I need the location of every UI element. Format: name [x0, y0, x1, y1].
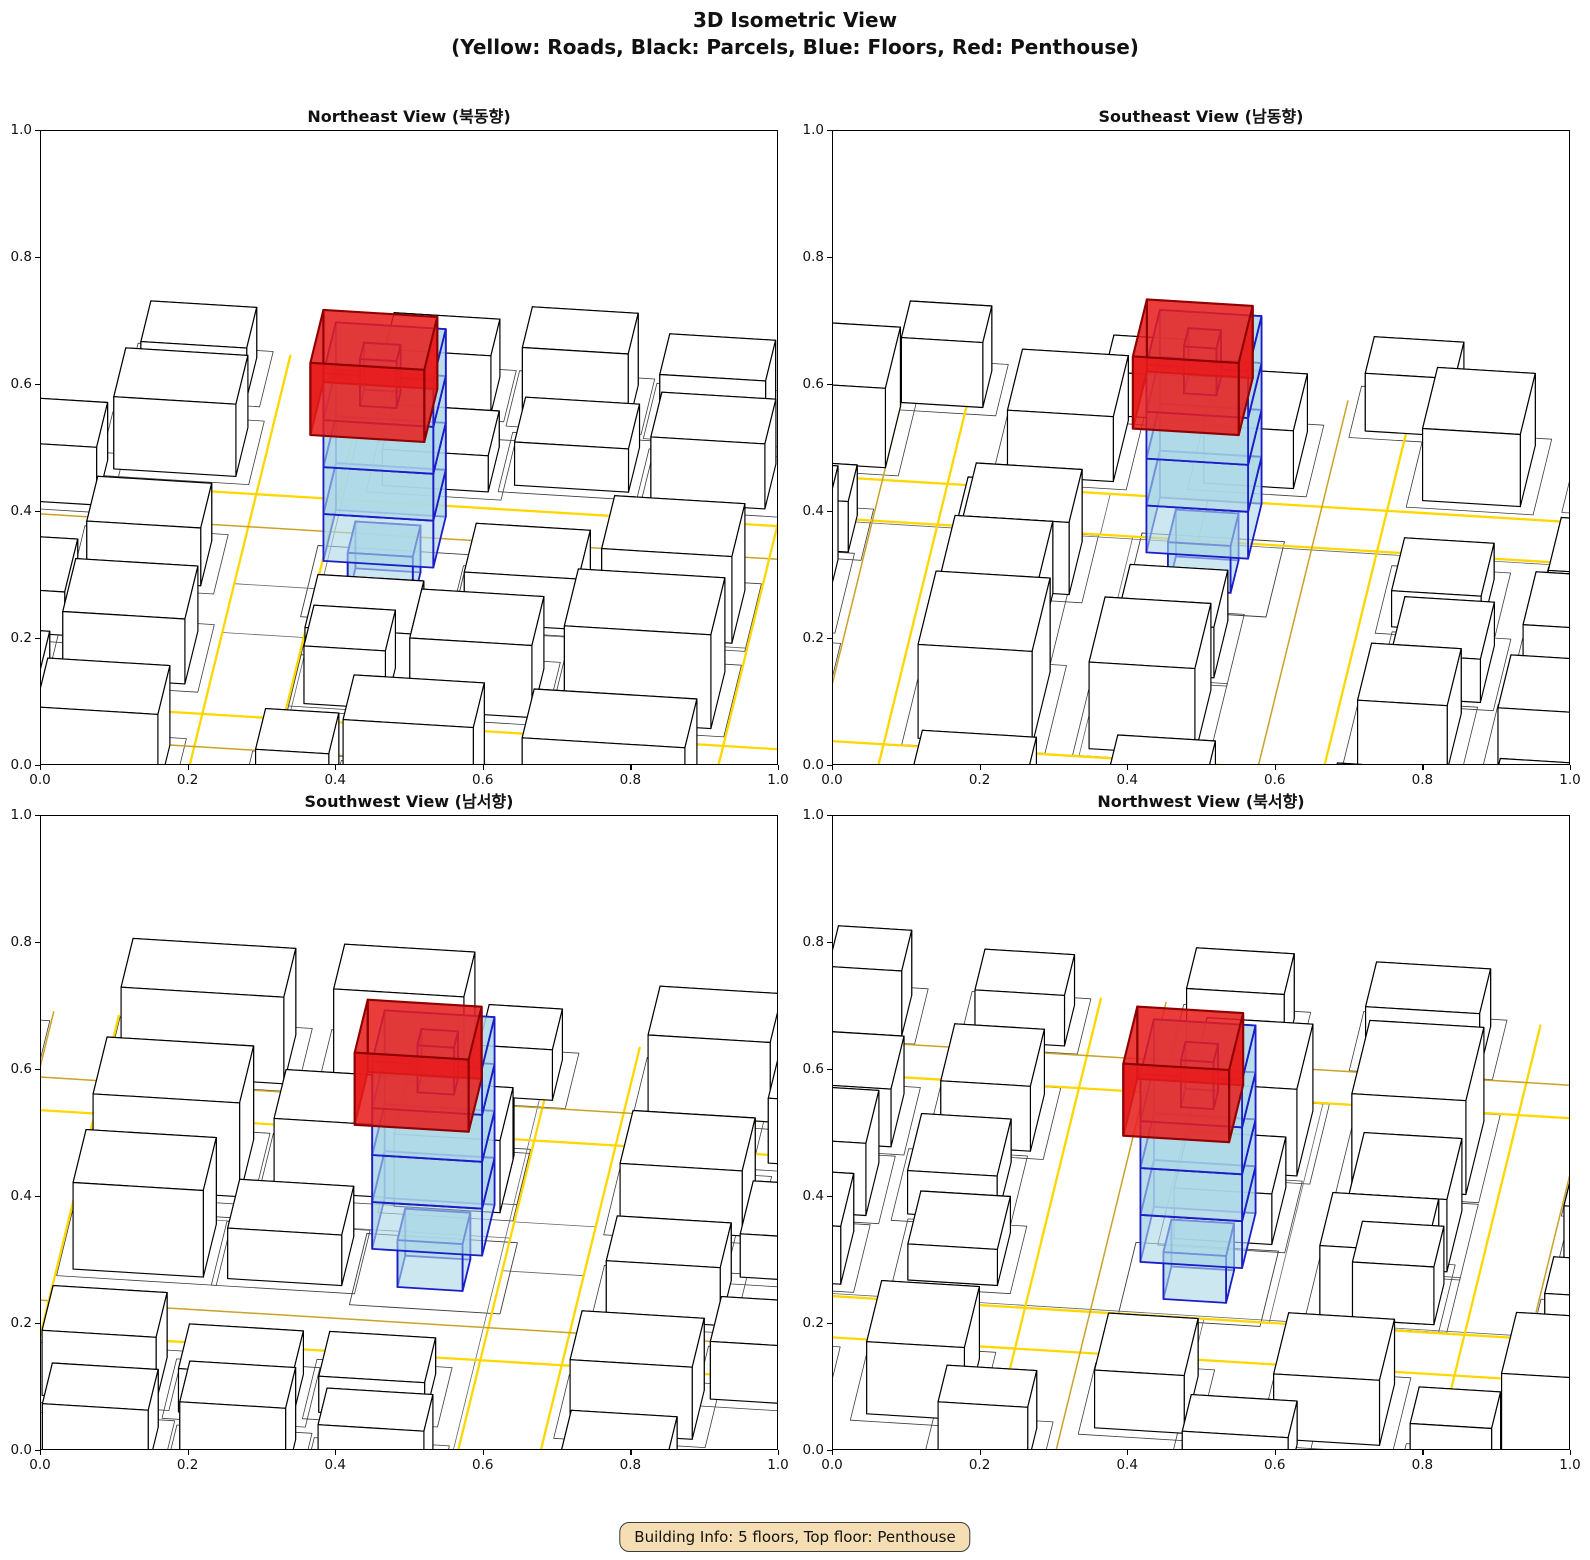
y-tick-label: 0.0 — [0, 757, 32, 773]
building-top-face — [180, 1361, 296, 1408]
figure: 3D Isometric View (Yellow: Roads, Black:… — [0, 0, 1590, 1560]
building-top-face — [334, 944, 475, 997]
building-side-face — [901, 338, 982, 408]
x-tick-mark — [1127, 765, 1128, 770]
building-top-face — [40, 658, 170, 714]
building-top-face — [561, 1410, 677, 1450]
building-side-face — [740, 1234, 778, 1282]
y-tick-mark — [35, 511, 40, 512]
y-tick-mark — [827, 511, 832, 512]
panel-title-southwest: Southwest View (남서향) — [40, 788, 778, 812]
building-top-face — [63, 559, 198, 619]
x-tick-label: 0.4 — [313, 772, 357, 788]
y-tick-label: 0.2 — [0, 630, 32, 646]
subject-floor-3-side-face — [323, 467, 433, 521]
building-side-face — [1498, 708, 1570, 765]
building-top-face — [73, 1130, 216, 1191]
scene-northwest — [832, 926, 1570, 1450]
x-tick-label: 1.0 — [756, 1457, 800, 1473]
scene-southwest — [40, 938, 778, 1450]
y-tick-mark — [827, 942, 832, 943]
y-tick-mark — [35, 384, 40, 385]
x-tick-mark — [188, 765, 189, 770]
building-top-face — [515, 397, 640, 449]
x-tick-mark — [1275, 765, 1276, 770]
y-tick-mark — [35, 765, 40, 766]
parcel-outline — [1562, 445, 1570, 519]
y-tick-mark — [35, 1069, 40, 1070]
building-side-face — [918, 644, 1032, 745]
building-side-face — [1358, 700, 1448, 765]
ground-line — [222, 633, 303, 638]
y-tick-label: 0.8 — [0, 934, 32, 950]
building-top-face — [648, 986, 778, 1042]
building-top-face — [620, 1111, 755, 1171]
building-top-face — [93, 1037, 254, 1103]
building-top-face — [1089, 597, 1211, 669]
building-side-face — [42, 1404, 148, 1450]
x-tick-mark — [483, 765, 484, 770]
building-side-face — [40, 588, 65, 636]
y-tick-label: 0.6 — [790, 1061, 824, 1077]
y-tick-mark — [35, 942, 40, 943]
building-top-face — [963, 463, 1082, 522]
y-tick-label: 0.2 — [790, 630, 824, 646]
building-side-face — [1410, 1424, 1491, 1451]
subject-floor-2-side-face — [1146, 506, 1248, 559]
y-tick-label: 0.0 — [790, 1442, 824, 1458]
y-tick-mark — [827, 384, 832, 385]
x-tick-label: 1.0 — [756, 772, 800, 788]
building-top-face — [1187, 948, 1295, 995]
building-side-face — [114, 397, 236, 477]
building-top-face — [1548, 518, 1570, 575]
building-side-face — [40, 443, 97, 505]
y-tick-mark — [35, 130, 40, 131]
building-top-face — [1498, 655, 1570, 713]
y-tick-mark — [827, 815, 832, 816]
x-tick-mark — [483, 1450, 484, 1455]
building-top-face — [42, 1286, 167, 1338]
y-tick-label: 0.4 — [790, 1188, 824, 1204]
y-tick-label: 1.0 — [790, 122, 824, 138]
y-tick-label: 0.0 — [0, 1442, 32, 1458]
x-tick-label: 0.6 — [1253, 1457, 1297, 1473]
x-tick-mark — [630, 765, 631, 770]
y-tick-mark — [35, 1323, 40, 1324]
building-top-face — [570, 1311, 704, 1367]
x-tick-mark — [1570, 1450, 1571, 1455]
y-tick-mark — [35, 257, 40, 258]
building-top-face — [304, 605, 395, 651]
building-top-face — [318, 1388, 433, 1431]
y-tick-mark — [827, 1450, 832, 1451]
x-tick-label: 0.8 — [608, 1457, 652, 1473]
building-top-face — [410, 589, 544, 645]
ground-line — [234, 584, 315, 589]
building-top-face — [114, 348, 248, 404]
building-top-face — [564, 569, 725, 635]
building-side-face — [228, 1228, 342, 1286]
y-tick-mark — [827, 1069, 832, 1070]
x-tick-mark — [778, 765, 779, 770]
building-top-face — [867, 1281, 980, 1348]
panel-title-northeast: Northeast View (북동향) — [40, 103, 778, 127]
building-side-face — [73, 1183, 203, 1278]
building-side-face — [343, 720, 473, 765]
y-tick-label: 0.6 — [790, 376, 824, 392]
building-top-face — [1095, 1313, 1199, 1376]
building-side-face — [648, 1035, 770, 1122]
y-tick-label: 0.4 — [0, 503, 32, 519]
building-top-face — [1352, 1020, 1484, 1100]
building-top-face — [141, 301, 257, 348]
building-top-face — [1008, 349, 1129, 417]
building-top-face — [908, 1191, 1011, 1249]
y-tick-mark — [35, 1450, 40, 1451]
x-tick-label: 0.2 — [166, 1457, 210, 1473]
x-tick-label: 0.0 — [18, 772, 62, 788]
y-tick-label: 0.6 — [0, 376, 32, 392]
penthouse-side-face — [1123, 1064, 1229, 1143]
subject-floor-3-side-face — [1146, 459, 1248, 512]
view-panel-southeast — [832, 130, 1570, 765]
x-tick-label: 0.8 — [608, 772, 652, 788]
x-tick-label: 0.0 — [810, 772, 854, 788]
building-top-face — [710, 1297, 778, 1346]
building-side-face — [40, 707, 158, 765]
y-tick-label: 0.2 — [0, 1315, 32, 1331]
building-top-face — [901, 301, 991, 343]
building-top-face — [1502, 1312, 1570, 1379]
y-tick-mark — [35, 815, 40, 816]
building-top-face — [343, 675, 484, 728]
x-tick-label: 0.4 — [1105, 1457, 1149, 1473]
building-top-face — [832, 926, 912, 971]
building-info-box: Building Info: 5 floors, Top floor: Pent… — [619, 1522, 970, 1552]
subject-floor-2-side-face — [1140, 1215, 1242, 1268]
y-tick-label: 0.4 — [790, 503, 824, 519]
y-tick-label: 1.0 — [790, 807, 824, 823]
parcel-outline — [832, 1340, 840, 1414]
building-top-face — [938, 1365, 1037, 1407]
building-top-face — [1410, 1387, 1500, 1429]
x-tick-mark — [1275, 1450, 1276, 1455]
building-top-face — [941, 1024, 1045, 1087]
building-top-face — [606, 1216, 731, 1268]
building-top-face — [1353, 1221, 1444, 1267]
building-side-face — [1095, 1370, 1185, 1433]
x-tick-label: 0.4 — [1105, 772, 1149, 788]
building-top-face — [1392, 538, 1495, 596]
building-top-face — [660, 334, 776, 381]
building-side-face — [180, 1402, 286, 1450]
x-tick-mark — [1422, 765, 1423, 770]
x-tick-mark — [40, 1450, 41, 1455]
building-top-face — [42, 1363, 158, 1410]
scene-northeast — [40, 301, 778, 765]
building-top-face — [1108, 735, 1216, 765]
x-tick-mark — [40, 765, 41, 770]
y-tick-label: 0.6 — [0, 1061, 32, 1077]
building-top-face — [1349, 1133, 1462, 1200]
building-info-text: Building Info: 5 floors, Top floor: Pent… — [634, 1528, 955, 1546]
figure-subtitle: (Yellow: Roads, Black: Parcels, Blue: Fl… — [0, 35, 1590, 59]
x-tick-label: 0.6 — [461, 772, 505, 788]
building-side-face — [832, 382, 885, 467]
penthouse-side-face — [1133, 356, 1239, 435]
y-tick-mark — [35, 638, 40, 639]
building-top-face — [602, 496, 745, 557]
ground-line — [514, 1222, 595, 1227]
x-tick-mark — [188, 1450, 189, 1455]
panel-title-northwest: Northwest View (북서향) — [832, 788, 1570, 812]
panel-title-southeast: Southeast View (남동향) — [832, 103, 1570, 127]
x-tick-label: 0.0 — [18, 1457, 62, 1473]
building-top-face — [1423, 367, 1536, 434]
x-tick-mark — [778, 1450, 779, 1455]
building-top-face — [975, 949, 1075, 995]
x-tick-label: 0.8 — [1400, 772, 1444, 788]
building-top-face — [87, 476, 212, 528]
building-top-face — [1523, 572, 1570, 630]
x-tick-mark — [335, 765, 336, 770]
building-side-face — [832, 967, 902, 1036]
y-tick-label: 0.0 — [790, 757, 824, 773]
ground-line — [502, 1271, 583, 1276]
y-tick-mark — [827, 257, 832, 258]
building-side-face — [710, 1341, 778, 1403]
y-tick-mark — [827, 638, 832, 639]
x-tick-mark — [335, 1450, 336, 1455]
building-top-face — [40, 398, 108, 447]
x-tick-label: 0.2 — [958, 1457, 1002, 1473]
y-tick-mark — [827, 765, 832, 766]
y-tick-label: 0.8 — [790, 249, 824, 265]
building-side-face — [515, 442, 629, 492]
x-tick-label: 1.0 — [1548, 772, 1590, 788]
y-tick-mark — [35, 1196, 40, 1197]
building-top-face — [651, 392, 776, 444]
building-top-face — [908, 1114, 1012, 1177]
building-top-face — [464, 523, 590, 579]
view-panel-northeast — [40, 130, 778, 765]
x-tick-label: 0.8 — [1400, 1457, 1444, 1473]
building-top-face — [1366, 962, 1491, 1014]
subject-floor-3-side-face — [1140, 1168, 1242, 1221]
subject-floor-2-side-face — [372, 1202, 482, 1256]
x-tick-mark — [630, 1450, 631, 1455]
penthouse-side-face — [355, 1053, 469, 1132]
x-tick-mark — [832, 1450, 833, 1455]
building-top-face — [1182, 1395, 1297, 1438]
x-tick-label: 0.2 — [166, 772, 210, 788]
y-tick-label: 1.0 — [0, 122, 32, 138]
building-top-face — [228, 1179, 354, 1235]
subject-floor-2-side-face — [323, 514, 433, 568]
x-tick-mark — [980, 1450, 981, 1455]
building-top-face — [522, 307, 638, 354]
building-top-face — [319, 1331, 436, 1382]
x-tick-label: 0.6 — [1253, 772, 1297, 788]
y-tick-label: 0.8 — [790, 934, 824, 950]
x-tick-mark — [1127, 1450, 1128, 1455]
y-tick-mark — [827, 1196, 832, 1197]
y-tick-mark — [827, 130, 832, 131]
x-tick-mark — [980, 765, 981, 770]
building-side-face — [908, 1244, 998, 1286]
building-side-face — [832, 1222, 841, 1284]
x-tick-label: 0.2 — [958, 772, 1002, 788]
subject-floor-3-side-face — [372, 1155, 482, 1209]
y-tick-label: 0.2 — [790, 1315, 824, 1331]
y-tick-label: 0.8 — [0, 249, 32, 265]
building-side-face — [1423, 429, 1521, 507]
x-tick-mark — [832, 765, 833, 770]
scene-southeast — [832, 299, 1570, 765]
view-panel-southwest — [40, 815, 778, 1450]
y-tick-mark — [827, 1323, 832, 1324]
x-tick-label: 0.0 — [810, 1457, 854, 1473]
x-tick-label: 1.0 — [1548, 1457, 1590, 1473]
building-side-face — [651, 437, 765, 509]
building-top-face — [1358, 643, 1462, 706]
penthouse-side-face — [310, 363, 424, 442]
x-tick-mark — [1570, 765, 1571, 770]
building-top-face — [256, 709, 339, 754]
building-side-face — [1353, 1262, 1434, 1325]
building-side-face — [938, 1402, 1028, 1450]
y-tick-label: 0.4 — [0, 1188, 32, 1204]
building-side-face — [1502, 1373, 1570, 1450]
building-top-face — [1274, 1313, 1395, 1381]
parcel-outline — [832, 636, 841, 740]
y-tick-label: 1.0 — [0, 807, 32, 823]
figure-title: 3D Isometric View — [0, 8, 1590, 32]
x-tick-mark — [1422, 1450, 1423, 1455]
ground-line — [1100, 494, 1110, 535]
view-panel-northwest — [832, 815, 1570, 1450]
building-top-face — [918, 571, 1050, 651]
x-tick-label: 0.6 — [461, 1457, 505, 1473]
x-tick-label: 0.4 — [313, 1457, 357, 1473]
building-side-face — [768, 1098, 778, 1167]
